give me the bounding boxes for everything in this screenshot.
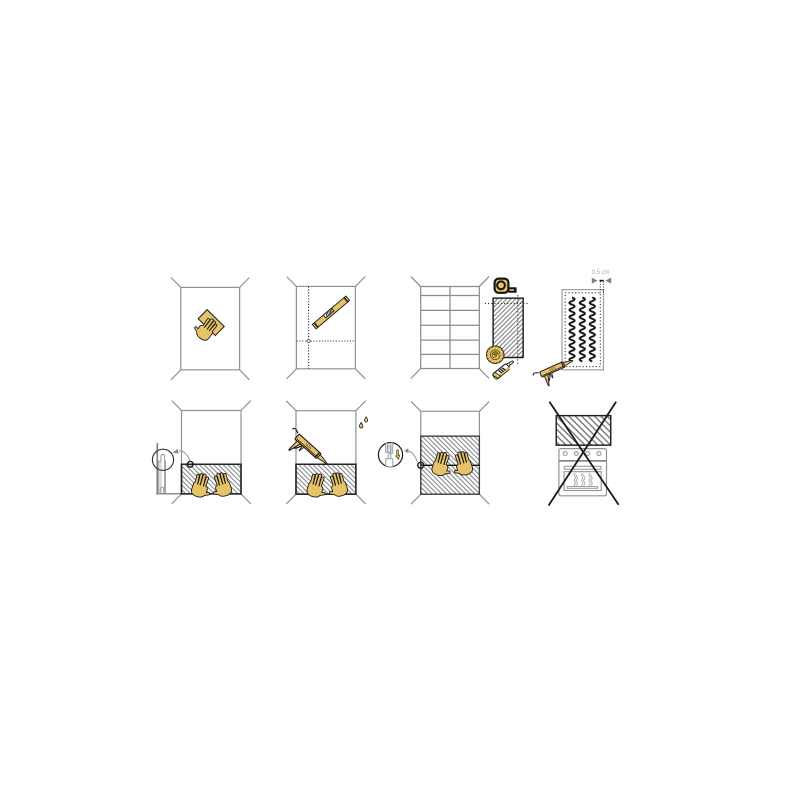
svg-text:0,5 cm: 0,5 cm: [592, 270, 610, 276]
